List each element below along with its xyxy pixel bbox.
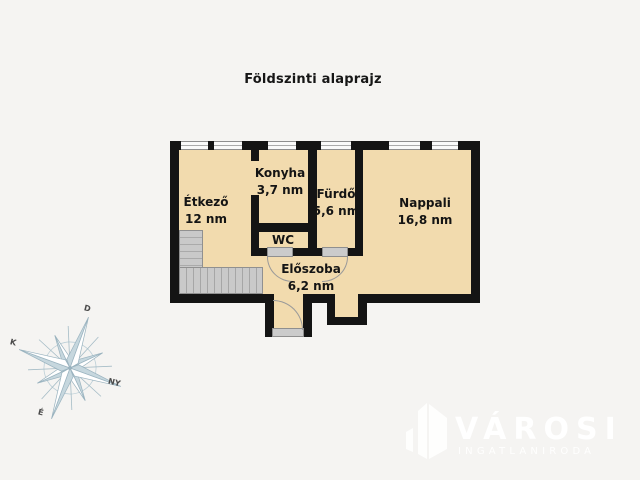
window (268, 141, 296, 150)
logo-tagline-text: INGATLANIRODA (458, 446, 595, 457)
room-name: Étkező (166, 194, 246, 211)
page-title: Földszinti alaprajz (153, 72, 473, 87)
room-area: 6,2 nm (264, 278, 358, 295)
wall-nook-right (358, 294, 367, 325)
window (181, 141, 208, 150)
window (432, 141, 458, 150)
window (389, 141, 420, 150)
compass-rose-icon (8, 302, 138, 432)
wall-kitchen-stub (251, 148, 259, 161)
window (214, 141, 242, 150)
window (321, 141, 351, 150)
logo-brand-text: VÁROSI (455, 412, 623, 447)
bathroom-door (322, 247, 348, 257)
room-name: Előszoba (264, 261, 358, 278)
room-label-wc: WC (260, 232, 306, 249)
room-label-etkezo: Étkező 12 nm (166, 194, 246, 228)
room-name: Konyha (243, 165, 317, 182)
room-label-furdo: Fürdő 5,6 nm (299, 186, 373, 220)
stairs-upper-flight (179, 230, 203, 268)
room-label-nappali: Nappali 16,8 nm (383, 195, 467, 229)
room-label-eloszoba: Előszoba 6,2 nm (264, 261, 358, 295)
wall-outer-right (471, 141, 480, 303)
floor-plan-page: Földszinti alaprajz Étkező 12 nm Konyha (0, 0, 640, 480)
room-area: 16,8 nm (383, 212, 467, 229)
room-name: WC (260, 232, 306, 249)
wall-vestibule-right (303, 294, 312, 337)
stairs-lower-flight (179, 267, 263, 294)
room-area: 5,6 nm (299, 203, 373, 220)
room-name: Fürdő (299, 186, 373, 203)
wall-outer-bottom-left (170, 294, 274, 303)
wall-outer-bottom-right (358, 294, 480, 303)
room-area: 12 nm (166, 211, 246, 228)
building-icon (396, 397, 452, 467)
room-name: Nappali (383, 195, 467, 212)
